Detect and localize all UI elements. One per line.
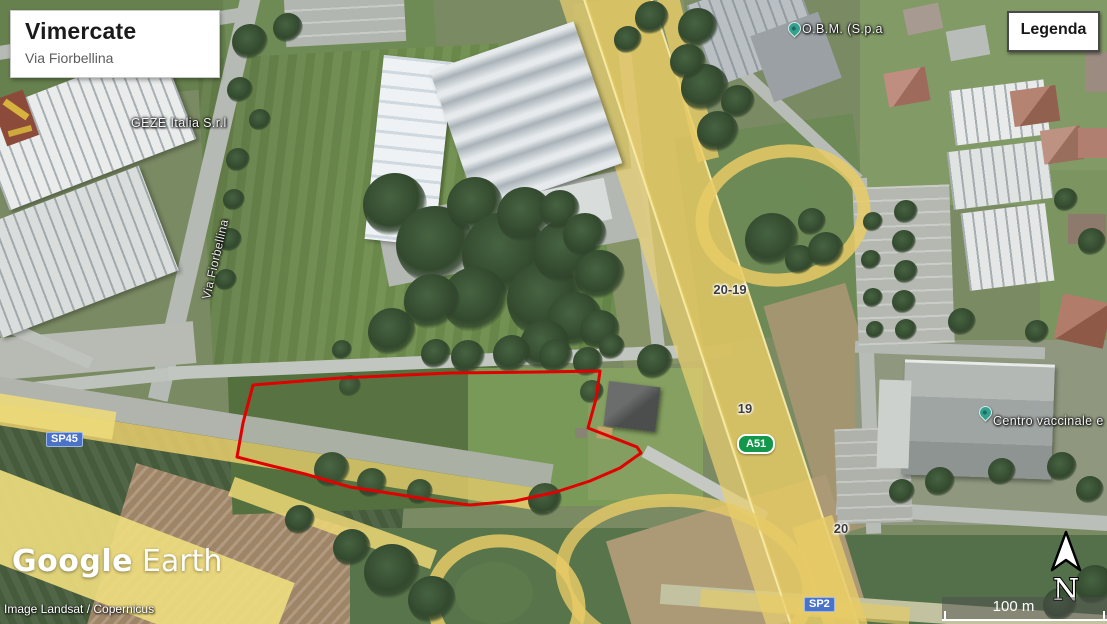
house [883, 67, 930, 108]
tree [892, 290, 916, 314]
tree [339, 375, 361, 397]
tree [670, 44, 706, 80]
tree [285, 505, 315, 535]
logo-word-google: Google [12, 544, 133, 579]
house [603, 381, 660, 432]
tree [451, 340, 485, 374]
north-arrow-icon [1052, 532, 1080, 570]
house [1010, 85, 1061, 127]
tree [894, 200, 918, 224]
tree [539, 339, 573, 373]
tree [314, 452, 350, 488]
tree [528, 483, 562, 517]
scale-tick-right [1103, 611, 1105, 621]
tree [333, 529, 371, 567]
house [1078, 128, 1107, 158]
junction-label-20-19: 20-19 [705, 282, 755, 297]
imagery-attribution: Image Landsat / Copernicus [4, 602, 154, 616]
scale-bar: 100 m [942, 597, 1107, 621]
location-card: Vimercate Via Fiorbellina [10, 10, 220, 78]
scale-line [942, 619, 1107, 621]
tree [1078, 228, 1106, 256]
road-badge-sp2: SP2 [804, 597, 835, 612]
tree [863, 212, 883, 232]
road-badge-a51: A51 [737, 434, 775, 454]
tree [226, 148, 250, 172]
tree [861, 250, 881, 270]
tree [892, 230, 916, 254]
tree [678, 8, 718, 48]
tree [808, 232, 844, 268]
tree [332, 340, 352, 360]
tree [614, 26, 642, 54]
tree [1047, 452, 1077, 482]
building [961, 203, 1055, 291]
tree [988, 458, 1016, 486]
tree [273, 13, 303, 43]
tree [863, 288, 883, 308]
tree [357, 468, 387, 498]
junction-label-19: 19 [730, 401, 760, 416]
label-company-geze: GEZE Italia S.r.l [131, 116, 227, 130]
tree [798, 208, 826, 236]
tree [925, 467, 955, 497]
building [876, 379, 911, 468]
tree [635, 1, 669, 35]
tree [408, 576, 456, 624]
tree [407, 479, 433, 505]
tree [637, 344, 673, 380]
logo-word-earth: Earth [142, 544, 222, 579]
map-canvas[interactable]: GEZE Italia S.r.l Via Fiorbellina O.B.M.… [0, 0, 1107, 624]
tree [227, 77, 253, 103]
tree [573, 347, 603, 377]
scale-tick-left [944, 611, 946, 621]
legend-button[interactable]: Legenda [1007, 11, 1100, 52]
shed [596, 426, 612, 440]
road-badge-sp45: SP45 [46, 432, 83, 447]
junction-label-20: 20 [826, 521, 856, 536]
tree [368, 308, 416, 356]
house [1085, 52, 1107, 92]
tree [223, 189, 245, 211]
label-centro-vaccinale: Centro vaccinale e [993, 414, 1104, 428]
scale-label: 100 m [942, 598, 1085, 615]
median-green [455, 562, 533, 624]
tree [889, 479, 915, 505]
tree [1076, 476, 1104, 504]
tree [948, 308, 976, 336]
tree [493, 335, 531, 373]
shed [575, 428, 587, 438]
tree [1025, 320, 1049, 344]
location-subtitle: Via Fiorbellina [25, 50, 203, 66]
tree [249, 109, 271, 131]
tree [421, 339, 451, 369]
tree [866, 321, 884, 339]
tree [580, 380, 604, 404]
tree [232, 24, 268, 60]
tree [895, 319, 917, 341]
google-earth-logo: GoogleEarth [12, 544, 222, 579]
label-company-obm: O.B.M. (S.p.a [802, 22, 883, 36]
location-title: Vimercate [25, 18, 203, 45]
north-compass: N [1042, 530, 1090, 606]
tree [599, 334, 625, 360]
tree [721, 85, 755, 119]
building [947, 140, 1053, 210]
tree [894, 260, 918, 284]
tree [1054, 188, 1078, 212]
